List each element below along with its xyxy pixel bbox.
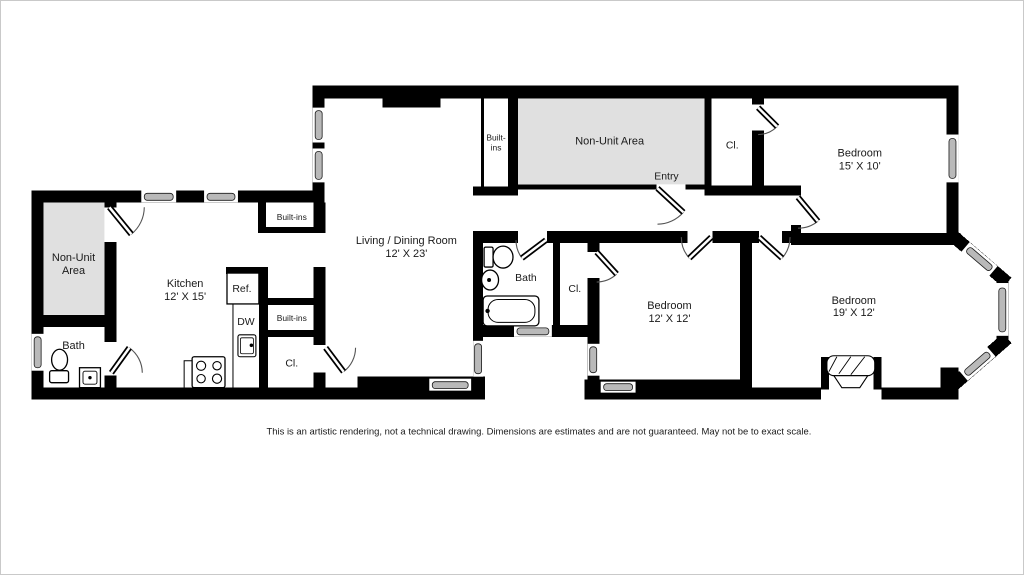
door-closet-kitchen bbox=[326, 348, 356, 372]
label-bath-middle: Bath bbox=[515, 273, 537, 284]
floor-plan: Non-Unit Area Bath Kitchen 12' X 15' Ref… bbox=[1, 1, 1023, 574]
label-refrigerator: Ref. bbox=[232, 284, 251, 295]
door-bath-middle bbox=[516, 240, 546, 258]
label-built-ins-living-line1: Built- bbox=[486, 133, 505, 143]
window bbox=[141, 190, 176, 202]
stove-icon bbox=[192, 357, 225, 388]
wall-segment bbox=[882, 388, 959, 400]
wall-segment bbox=[740, 243, 752, 399]
window bbox=[601, 382, 636, 393]
room-label-bath-left: Bath bbox=[62, 340, 85, 352]
label-closet-kitchen: Cl. bbox=[285, 359, 298, 370]
non-unit-areas bbox=[44, 99, 705, 315]
room-dims-bedroom-15x10: 15' X 10' bbox=[839, 160, 881, 172]
room-dims-bedroom-12x12: 12' X 12' bbox=[648, 313, 690, 325]
room-label-non-unit-left-line2: Area bbox=[62, 265, 86, 277]
label-built-ins-living-line2: ins bbox=[491, 142, 502, 152]
floor-plan-canvas: Non-Unit Area Bath Kitchen 12' X 15' Ref… bbox=[0, 0, 1024, 575]
wall-segment bbox=[104, 376, 116, 388]
wall-segment bbox=[313, 86, 959, 99]
sink-icon bbox=[482, 270, 499, 290]
wall-segment bbox=[685, 184, 704, 189]
wall-segment bbox=[259, 267, 268, 388]
door-closet-top bbox=[758, 108, 777, 135]
disclaimer-text: This is an artistic rendering, not a tec… bbox=[266, 426, 811, 437]
toilet-icon bbox=[50, 349, 69, 382]
room-dims-bedroom-19x12: 19' X 12' bbox=[833, 307, 875, 319]
wall-segment bbox=[382, 99, 440, 108]
room-dims-living-dining: 12' X 23' bbox=[385, 248, 427, 260]
window bbox=[313, 148, 325, 182]
door-entry bbox=[657, 188, 683, 224]
wall-segment bbox=[314, 373, 326, 388]
room-label-non-unit-left-line1: Non-Unit bbox=[52, 252, 95, 264]
window bbox=[313, 108, 325, 143]
wall-segment bbox=[791, 233, 960, 245]
room-label-bedroom-15x10: Bedroom bbox=[838, 147, 882, 159]
wall-segment bbox=[32, 190, 325, 202]
window bbox=[996, 283, 1008, 336]
wall-segment bbox=[752, 99, 764, 105]
wall-segment bbox=[518, 184, 657, 189]
wall-segment bbox=[473, 186, 518, 195]
label-built-ins-kitchen-mid: Built-ins bbox=[277, 313, 307, 323]
wall-segment bbox=[712, 231, 759, 243]
bathtub-icon bbox=[483, 296, 539, 326]
wall-segment bbox=[704, 99, 711, 187]
radiator-icon bbox=[827, 356, 875, 388]
wall-segment bbox=[588, 231, 600, 252]
room-label-living-dining: Living / Dining Room bbox=[356, 235, 457, 247]
wall-segment bbox=[508, 99, 518, 187]
room-dims-kitchen: 12' X 15' bbox=[164, 291, 206, 303]
dishwasher-sink-icon bbox=[238, 335, 256, 357]
door-kitchen-entry bbox=[109, 207, 144, 234]
wall-segment bbox=[314, 202, 326, 233]
label-entry: Entry bbox=[654, 171, 679, 182]
toilet-icon bbox=[484, 246, 513, 268]
wall-segment bbox=[314, 267, 326, 345]
window bbox=[32, 334, 44, 371]
wall-segment bbox=[588, 278, 600, 327]
room-label-non-unit-top: Non-Unit Area bbox=[575, 135, 645, 147]
wall-segment bbox=[481, 99, 484, 187]
label-built-ins-kitchen-top: Built-ins bbox=[277, 212, 307, 222]
door-bath-left bbox=[111, 348, 142, 373]
wall-segment bbox=[740, 388, 821, 400]
window bbox=[204, 190, 238, 202]
window bbox=[429, 379, 471, 391]
door-bedroom-15x10 bbox=[798, 197, 818, 228]
label-closet-middle: Cl. bbox=[568, 284, 581, 295]
window bbox=[514, 325, 552, 337]
label-dishwasher: DW bbox=[237, 317, 255, 328]
label-closet-top: Cl. bbox=[726, 140, 739, 151]
sink-icon bbox=[80, 368, 101, 388]
window bbox=[473, 341, 483, 377]
window bbox=[946, 135, 958, 183]
window-bay-lower bbox=[959, 347, 995, 381]
window bbox=[588, 344, 600, 376]
room-label-bedroom-19x12: Bedroom bbox=[832, 295, 876, 307]
wall-segment bbox=[597, 231, 688, 243]
doors bbox=[109, 108, 818, 373]
wall-segment bbox=[752, 131, 764, 188]
door-closet-middle bbox=[597, 252, 617, 282]
room-label-bedroom-12x12: Bedroom bbox=[647, 300, 691, 312]
window-bay-upper bbox=[961, 242, 997, 276]
wall-segment bbox=[104, 242, 116, 342]
wall-segment bbox=[44, 315, 105, 327]
room-label-kitchen: Kitchen bbox=[167, 278, 204, 290]
wall-segment bbox=[553, 239, 560, 327]
